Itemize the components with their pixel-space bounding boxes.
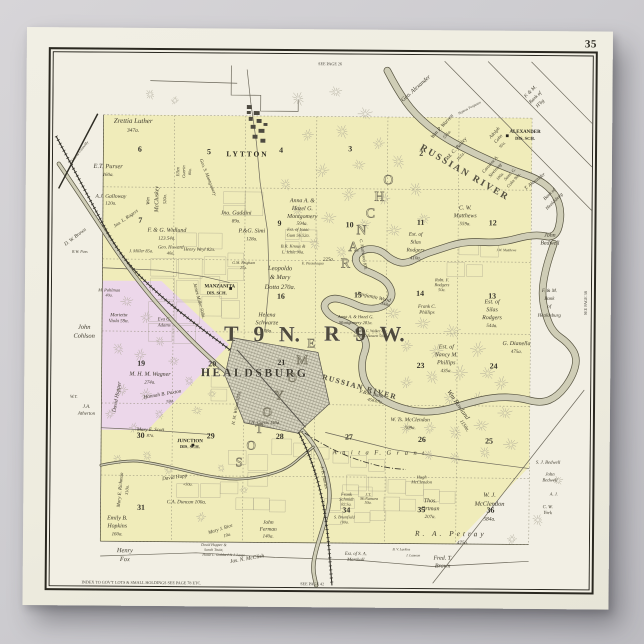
map-label: Est. of S. A. [344, 552, 367, 557]
section-number: 35 [417, 505, 425, 514]
map-label: Fox [119, 556, 130, 563]
lytton-block [251, 125, 256, 129]
map-label: Atherton [77, 412, 96, 417]
map-label: Adams [157, 323, 171, 328]
map-label: 347a. [126, 127, 139, 134]
map-label: J.W. Matthews [496, 248, 517, 252]
lytton-block [247, 105, 252, 109]
section-number: 9 [278, 219, 282, 228]
map-frame: LYTTONHEALDSBURGT9N.R9W.RUSSIAN RIVERRUS… [45, 47, 598, 594]
map-label: Bedwell [542, 478, 558, 483]
map-label: B. V. Larkins [392, 547, 410, 551]
map-label: McClendon [410, 479, 433, 484]
map-label: A. J. [549, 491, 558, 496]
map-label: Montgomery 281a. [338, 320, 373, 325]
map-label: SEE PAGE 42 [300, 581, 324, 586]
map-label: G. Dianella [503, 341, 531, 347]
lytton-block [247, 111, 251, 114]
map-label: O [246, 439, 255, 453]
section-number: 3 [348, 144, 352, 153]
map-label: J.A. [83, 405, 91, 410]
map-label: John [263, 520, 274, 526]
map-label: 310a. [124, 485, 130, 495]
map-label: 40a. [106, 292, 113, 297]
map-label: Phillips [418, 311, 434, 316]
map-label: F. & M. [541, 289, 557, 294]
map-label: Y [274, 388, 283, 402]
lytton-block [260, 139, 265, 143]
map-label: 509a. [405, 426, 416, 431]
section-number: 29 [207, 431, 215, 440]
map-label: SEE PAGE 26 [318, 61, 342, 66]
section-number: 4 [279, 146, 283, 155]
map-label: Jno. Gaddini [221, 210, 252, 216]
map-label: A [348, 239, 358, 254]
map-label: 160a. [112, 532, 123, 537]
map-label: McCluskey [154, 186, 160, 214]
map-label: Est. of [438, 343, 456, 350]
lytton-block [249, 117, 253, 121]
map-label: 584a. [483, 515, 495, 522]
map-label: 100a. [340, 519, 349, 524]
map-label: 274a. [144, 381, 155, 386]
map-label: DIS. SCH. [207, 290, 227, 295]
map-label: LYTTON [226, 149, 268, 158]
map-label: 87a. [147, 433, 155, 438]
map-label: David Hopper & [200, 543, 227, 547]
map-label: M. H. M. Wagner [128, 372, 171, 378]
map-label: N [356, 222, 366, 237]
map-label: 225a. [323, 258, 334, 263]
map-label: S. J. Bedwell [536, 461, 561, 466]
map-label: Phillips [436, 360, 456, 366]
map-label: O [287, 371, 296, 385]
atlas-poster: 35 LYTTONHEALDSBURGT9N.R9W.RUSSIAN RIVER… [22, 27, 613, 610]
section-number: 23 [417, 361, 425, 370]
map-label: Est. of Isaac [286, 227, 309, 232]
map-inner-border: LYTTONHEALDSBURGT9N.R9W.RUSSIAN RIVERRUS… [49, 51, 594, 590]
map-label: B.R. Knous & [281, 243, 306, 248]
section-number: 28 [276, 432, 284, 441]
map-label: C. W. [459, 205, 472, 211]
map-label: W. Ts. McClendon [391, 417, 431, 423]
map-label: Ferman [259, 527, 277, 533]
map-label: INDEX TO GOV'T LOTS & SMALL HOLDINGS SEE… [82, 579, 202, 585]
map-label: York [543, 511, 552, 516]
map-label: R. A. Petray [414, 529, 487, 539]
map-label: Rodgers [481, 315, 502, 321]
map-label: C.A. Duncan 100a. [167, 499, 206, 505]
map-label: 128a. [246, 237, 257, 242]
section-number: 30 [137, 431, 145, 440]
map-label: Henry [116, 547, 133, 554]
section-number: 27 [345, 432, 353, 441]
map-label: 435a. [441, 369, 452, 374]
map-label: Guerin [181, 165, 186, 178]
map-label: 140a. [263, 535, 274, 540]
map-label: P.&G. Simi [237, 228, 265, 234]
map-label: W.T. [70, 394, 78, 399]
map-label: M [296, 353, 308, 367]
map-label: Matthews [453, 213, 478, 219]
map-label: Est. of [408, 231, 424, 238]
map-label: 410a. [410, 256, 421, 261]
map-label: Bedwell [540, 241, 559, 247]
lytton-block [257, 119, 262, 123]
map-label: DIS. SCH. [180, 444, 200, 449]
map-label: F. & G. Widlund [147, 228, 187, 234]
map-label: W. J. [483, 492, 496, 499]
page-number: 35 [585, 38, 597, 50]
map-label: O [383, 172, 393, 187]
section-number: 14 [416, 289, 424, 298]
map-label: 475a. [511, 350, 522, 355]
map-graphics: LYTTONHEALDSBURGT9N.R9W.RUSSIAN RIVERRUS… [50, 52, 593, 589]
section-number: 19 [137, 359, 145, 368]
map-label: John [78, 324, 91, 331]
section-number: 36 [487, 506, 495, 515]
map-label: 123.54a. [158, 237, 175, 242]
map-label: 594a. [297, 222, 308, 227]
section-number: 11 [417, 218, 425, 227]
map-label: 89a. [232, 219, 241, 224]
map-label: N. [279, 322, 300, 346]
map-label: 207a. [425, 515, 436, 520]
section-number: 34 [342, 505, 350, 514]
map-label: John [544, 233, 556, 239]
map-label: Cohlson [73, 333, 94, 340]
lytton-block [254, 111, 260, 115]
map-label: A n i t a F. G r a n t [332, 449, 426, 457]
map-label: 544a. [486, 324, 497, 329]
map-label: +50a. [183, 482, 193, 487]
map-label: Frank C. [417, 305, 436, 310]
map-label: O [262, 405, 271, 419]
map-label: Louisa C. Walker & [354, 329, 385, 333]
map-label: Nancy M. [434, 352, 458, 358]
map-label: ALEXANDER [509, 130, 541, 135]
section-number: 7 [138, 216, 142, 225]
map-label: E [307, 336, 315, 350]
map-label: Gum 56.52a. [287, 233, 310, 238]
map-label: Wm [146, 197, 151, 205]
map-label: 475a. [457, 541, 468, 546]
section-number: 21 [277, 358, 285, 367]
map-label: Silas [486, 307, 498, 313]
map-label: Thos. [424, 498, 437, 504]
map-label: Rodgers [405, 247, 424, 253]
map-label: T [224, 322, 239, 346]
section-number: 2 [419, 149, 423, 158]
map-label: 80a. [187, 168, 192, 175]
map-label: Schwarze [256, 320, 279, 326]
map-label: & Mary [270, 274, 291, 281]
map-label: Fred. T. [432, 556, 452, 562]
map-label: Anna A. & Hazel G. [337, 314, 374, 319]
map-svg: LYTTONHEALDSBURGT9N.R9W.RUSSIAN RIVERRUS… [50, 52, 593, 589]
map-label: Healdsburg [537, 314, 562, 319]
map-label: R [324, 322, 340, 346]
map-label: 108a. [261, 329, 272, 334]
map-label: J. Miller 85a. [129, 248, 153, 253]
map-label: 50a. [365, 500, 372, 505]
section-number: 24 [490, 362, 498, 371]
map-label: 559a. [460, 222, 471, 227]
map-label: Helena [257, 312, 275, 318]
map-label: 50a. [438, 287, 445, 292]
map-label: Anna A. & [289, 198, 315, 204]
lytton-block [253, 135, 258, 139]
map-label: Leopoldo [267, 265, 293, 272]
map-label: Marietta [109, 313, 128, 318]
map-label: SEE PAGE 38 [583, 291, 588, 315]
map-label: C [366, 206, 375, 221]
map-label: H [374, 189, 384, 204]
map-label: R [341, 256, 351, 271]
map-label: 520a. [162, 194, 167, 204]
section-number: 16 [277, 292, 285, 301]
map-label: John [545, 473, 555, 478]
map-label: Hazel G. [291, 206, 313, 212]
map-label: DIS. SCH. [515, 136, 535, 141]
map-label: Zrettia Luther [114, 118, 153, 125]
map-label: MANZANITA [204, 284, 235, 289]
section-number: 12 [489, 218, 497, 227]
section-number: 20 [208, 359, 216, 368]
map-label: 40a. [167, 250, 175, 255]
map-label: Hattie L. Goddard & J. Large [201, 553, 245, 557]
map-label: Ellen [175, 166, 180, 177]
section-number: 26 [418, 435, 426, 444]
map-label: A.J. Galloway [94, 194, 126, 200]
map-label: Eva G. [157, 318, 171, 323]
section-number: 10 [346, 220, 354, 229]
photo-backdrop: 35 LYTTONHEALDSBURGT9N.R9W.RUSSIAN RIVER… [0, 0, 644, 644]
map-label: S [236, 455, 243, 469]
map-label: E. Passalaqua [301, 261, 324, 265]
section-number: 13 [488, 291, 496, 300]
section-number: 6 [138, 145, 142, 154]
map-label: Dotta 270a. [264, 284, 296, 291]
map-label: Viola 59a. [109, 319, 129, 324]
lytton-block [263, 123, 267, 126]
section-number: 31 [137, 503, 145, 512]
map-label: J. Lamson [406, 553, 420, 557]
section-number: 5 [207, 147, 211, 156]
map-label: Henry Weyl 82a. [183, 248, 215, 253]
map-label: Bank [544, 297, 555, 302]
section-number: 25 [485, 437, 493, 446]
section-number: 15 [354, 290, 362, 299]
map-label: Silas [410, 240, 421, 246]
map-label: R.W. Pass [71, 249, 88, 254]
map-label: Brown [435, 563, 451, 569]
map-label: of [547, 305, 552, 310]
map-label: Emily B. [106, 516, 127, 522]
school-building-marker [506, 134, 509, 137]
map-label: C. W. [543, 505, 554, 510]
map-label: Marshall [346, 558, 365, 563]
map-label: Sarah E. Bassett 50a. [353, 334, 385, 338]
map-label: Hopkins [106, 523, 127, 529]
map-label: J.H. Curtis 140a. [248, 421, 281, 426]
map-label: 160a. [103, 173, 114, 178]
map-label: Montgomery [286, 214, 318, 220]
map-label: L. Ichle 90a. [281, 249, 304, 254]
lytton-block [259, 129, 265, 133]
map-label: 25a. [240, 265, 247, 270]
map-label: E.T. Purser [93, 163, 124, 170]
map-label: 120a. [105, 202, 116, 207]
